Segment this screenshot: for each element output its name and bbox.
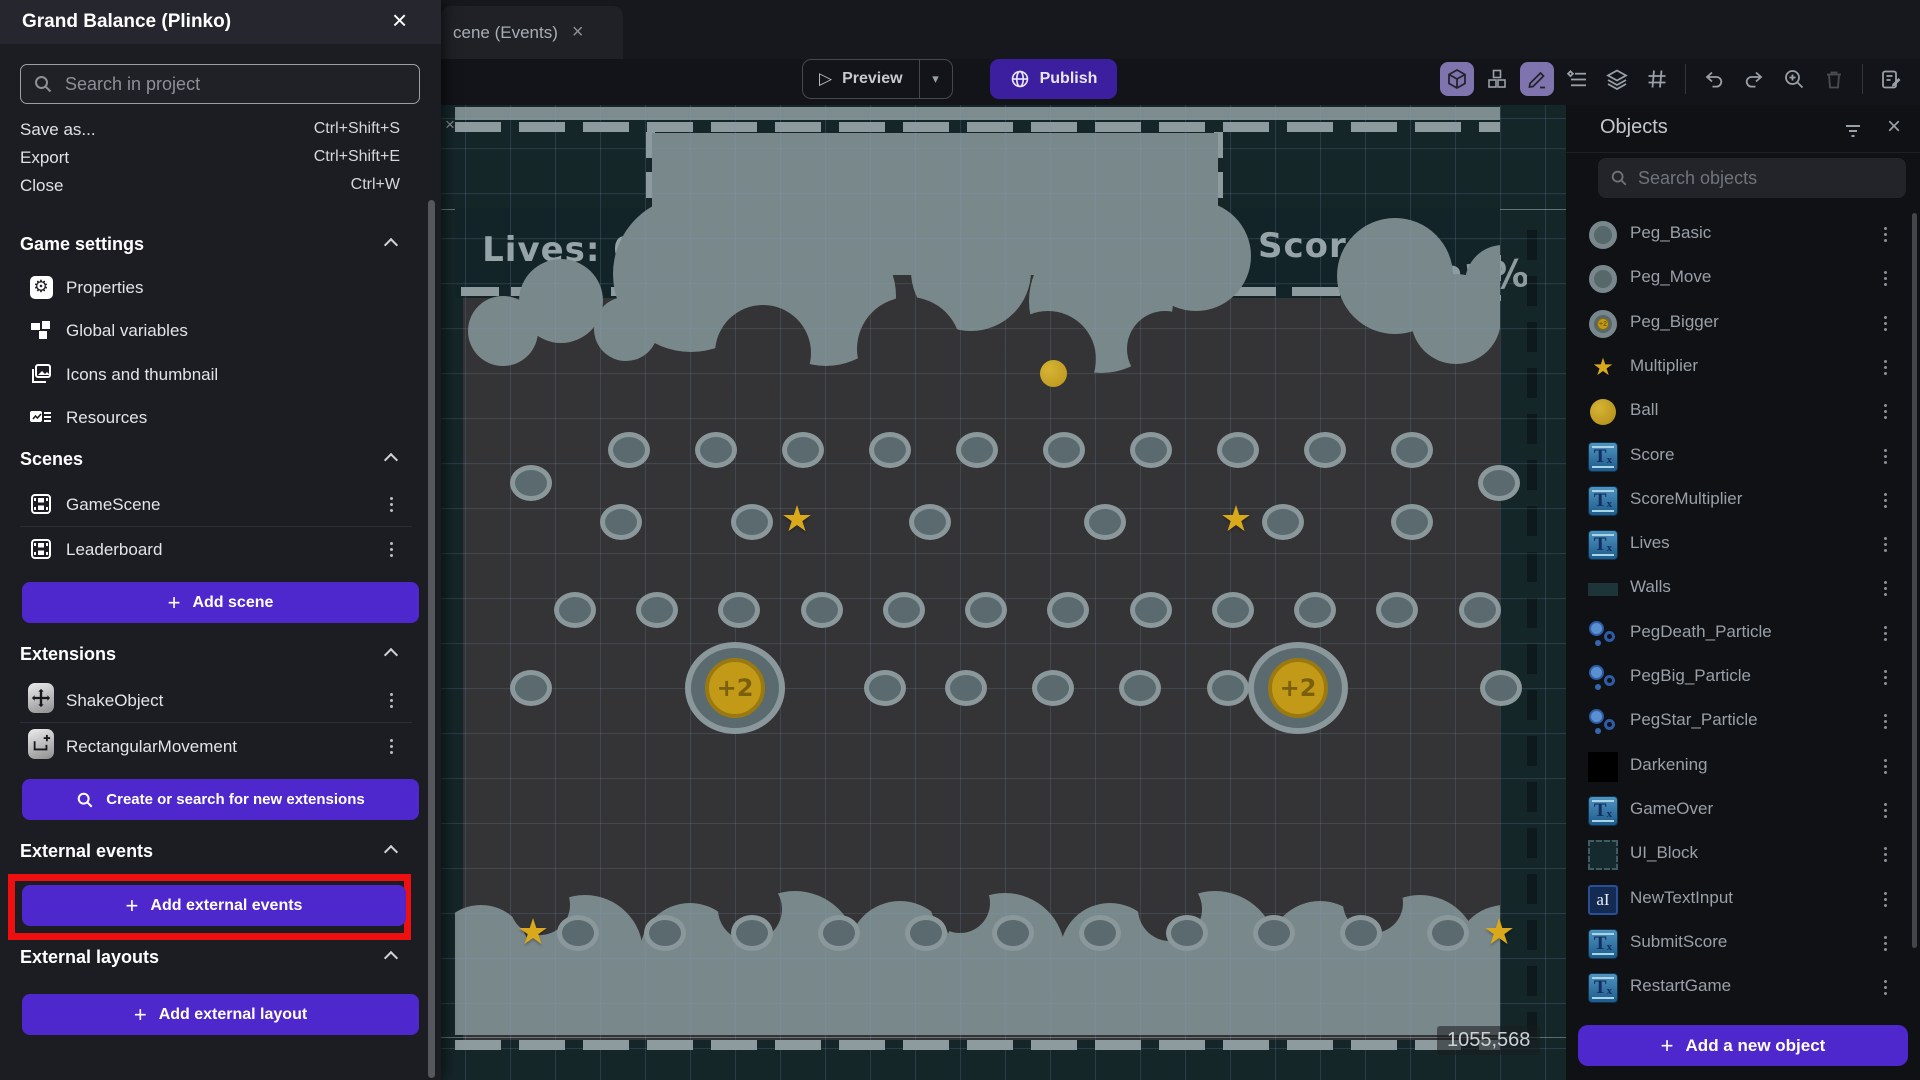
edit-tool-button[interactable] <box>1520 62 1554 96</box>
filter-icon[interactable] <box>1843 119 1863 144</box>
section-game-settings[interactable]: Game settings <box>20 234 144 255</box>
toolbar-divider <box>1685 64 1686 94</box>
add-external-events-button[interactable]: + Add external events <box>22 885 406 926</box>
coin-label: +2 <box>705 658 765 718</box>
peg-instance[interactable] <box>1217 432 1259 468</box>
multiplier-star-instance[interactable]: ★ <box>1216 499 1256 541</box>
peg-object-icon <box>1588 264 1618 294</box>
uiblock-object-icon <box>1588 840 1618 870</box>
section-scenes[interactable]: Scenes <box>20 449 83 470</box>
peg-instance[interactable] <box>945 670 987 706</box>
list-icon <box>1566 68 1588 90</box>
scene-icon <box>28 536 54 562</box>
grid-button[interactable] <box>1640 62 1674 96</box>
undo-button[interactable] <box>1697 62 1731 96</box>
search-icon <box>1610 169 1628 187</box>
project-title: Grand Balance (Plinko) <box>22 11 231 33</box>
project-manager-drawer: Grand Balance (Plinko) × Save as... Ctrl… <box>0 0 441 1080</box>
ball-object-icon <box>1588 397 1618 427</box>
object-row-submitscore[interactable]: TxSubmitScore <box>1566 922 1906 966</box>
sidebar-scrollbar[interactable] <box>428 200 435 1078</box>
publish-button[interactable]: Publish <box>990 59 1117 99</box>
object-name: Darkening <box>1630 755 1708 775</box>
kebab-menu-icon[interactable] <box>1884 980 1887 983</box>
object-name: Walls <box>1630 577 1671 597</box>
kebab-menu-icon[interactable] <box>390 542 393 545</box>
kebab-menu-icon[interactable] <box>1884 449 1887 452</box>
redo-button[interactable] <box>1737 62 1771 96</box>
peg-instance[interactable] <box>557 915 599 951</box>
events-sheet-icon <box>1880 68 1902 90</box>
object-row-walls[interactable]: Walls <box>1566 567 1906 611</box>
peg-instance[interactable] <box>992 915 1034 951</box>
text-object-icon: Tx <box>1588 486 1618 516</box>
gdevelop-editor: cene (Events) × ▷ Preview ▾ Publish <box>0 0 1920 1080</box>
object-name: PegStar_Particle <box>1630 710 1758 730</box>
sidebar-item-shakeobject[interactable]: ShakeObject <box>66 691 163 711</box>
peg-instance[interactable] <box>818 915 860 951</box>
trash-icon <box>1823 68 1845 90</box>
peg-instance[interactable] <box>1166 915 1208 951</box>
object-row-pegdeath_particle[interactable]: PegDeath_Particle <box>1566 612 1906 656</box>
walls-object-icon <box>1588 574 1618 604</box>
object-name: Peg_Basic <box>1630 223 1711 243</box>
bottom-wall-dashes <box>455 1040 1500 1050</box>
peg-instance[interactable] <box>636 592 678 628</box>
divider <box>20 526 412 527</box>
kebab-menu-icon[interactable] <box>1884 714 1887 717</box>
chevron-up-icon[interactable] <box>384 238 398 252</box>
search-icon <box>76 791 94 809</box>
multiplier-star-instance[interactable]: ★ <box>513 912 553 954</box>
peg-instance[interactable] <box>554 592 596 628</box>
peg-instance[interactable] <box>1391 504 1433 540</box>
object-row-ui_block[interactable]: UI_Block <box>1566 833 1906 877</box>
object-row-pegbig_particle[interactable]: PegBig_Particle <box>1566 656 1906 700</box>
objects-panel-close-icon[interactable]: × <box>1887 113 1901 141</box>
text-object-icon: Tx <box>1588 929 1618 959</box>
peg-instance[interactable] <box>1262 504 1304 540</box>
textinput-object-icon: aI <box>1588 885 1618 915</box>
create-search-extensions-button[interactable]: Create or search for new extensions <box>22 779 419 820</box>
peg-instance[interactable] <box>1119 670 1161 706</box>
ball-instance[interactable] <box>1040 360 1067 387</box>
menu-item-export[interactable]: Export Ctrl+Shift+E <box>0 148 420 174</box>
peg-instance[interactable] <box>801 592 843 628</box>
peg-instance[interactable] <box>1253 915 1295 951</box>
instances-tool-button[interactable] <box>1480 62 1514 96</box>
peg-instance[interactable] <box>600 504 642 540</box>
peg-instance[interactable] <box>695 432 737 468</box>
add-scene-button[interactable]: + Add scene <box>22 582 419 623</box>
chevron-up-icon[interactable] <box>384 951 398 965</box>
peg-instance[interactable] <box>608 432 650 468</box>
text-object-icon: Tx <box>1588 530 1618 560</box>
peg-instance[interactable] <box>731 915 773 951</box>
peg-instance[interactable] <box>1340 915 1382 951</box>
object-row-score[interactable]: TxScore <box>1566 435 1906 479</box>
object-row-ball[interactable]: Ball <box>1566 390 1906 434</box>
object-row-peg_bigger[interactable]: +2Peg_Bigger <box>1566 302 1906 346</box>
object-row-gameover[interactable]: TxGameOver <box>1566 789 1906 833</box>
divider <box>20 722 412 723</box>
toolbar-divider <box>1862 64 1863 94</box>
particle-object-icon <box>1588 619 1618 649</box>
shake-object-icon <box>28 685 54 711</box>
chevron-up-icon[interactable] <box>384 453 398 467</box>
sidebar-item-global-variables[interactable]: Global variables <box>66 321 188 341</box>
peg-instance[interactable] <box>1391 432 1433 468</box>
object-row-newtextinput[interactable]: aINewTextInput <box>1566 878 1906 922</box>
zoom-in-button[interactable] <box>1777 62 1811 96</box>
peg-bigger-instance[interactable]: +2 <box>685 642 785 734</box>
preview-dropdown-button[interactable]: ▾ <box>920 60 952 98</box>
tab-scene-events[interactable]: cene (Events) × <box>441 6 623 59</box>
layers-icon <box>1606 68 1628 90</box>
object-name: GameOver <box>1630 799 1713 819</box>
add-external-layout-button[interactable]: + Add external layout <box>22 994 419 1035</box>
shortcut: Ctrl+Shift+S <box>314 120 400 138</box>
objects-search-input[interactable] <box>1638 168 1878 189</box>
sidebar-item-gamescene[interactable]: GameScene <box>66 495 161 515</box>
object-row-restartgame[interactable]: TxRestartGame <box>1566 966 1906 1010</box>
resources-icon <box>28 404 54 430</box>
shortcut: Ctrl+Shift+E <box>314 148 400 166</box>
object-name: Score <box>1630 445 1674 465</box>
object-name: Ball <box>1630 400 1658 420</box>
coin-label: +2 <box>1268 658 1328 718</box>
kebab-menu-icon[interactable] <box>1884 316 1887 319</box>
grid-icon <box>1646 68 1668 90</box>
pencil-icon <box>1526 68 1548 90</box>
objects-panel-title: Objects <box>1600 116 1668 139</box>
sidebar-item-resources[interactable]: Resources <box>66 408 147 428</box>
peg-instance[interactable] <box>956 432 998 468</box>
peg-instance[interactable] <box>909 504 951 540</box>
object-name: PegBig_Particle <box>1630 666 1751 686</box>
peg-instance[interactable] <box>1427 915 1469 951</box>
peg-instance[interactable] <box>1043 432 1085 468</box>
object-row-pegstar_particle[interactable]: PegStar_Particle <box>1566 700 1906 744</box>
objects-search-box[interactable] <box>1598 158 1906 198</box>
peg-instance[interactable] <box>883 592 925 628</box>
object-name: NewTextInput <box>1630 888 1733 908</box>
object-name: Peg_Move <box>1630 267 1711 287</box>
sidebar-item-properties[interactable]: Properties <box>66 278 143 298</box>
peg-instance[interactable] <box>731 504 773 540</box>
kebab-menu-icon[interactable] <box>1884 626 1887 629</box>
shortcut: Ctrl+W <box>351 176 400 194</box>
kebab-menu-icon[interactable] <box>1884 404 1887 407</box>
kebab-menu-icon[interactable] <box>1884 537 1887 540</box>
peg-instance[interactable] <box>864 670 906 706</box>
sidebar-item-rectangularmovement[interactable]: RectangularMovement <box>66 737 237 757</box>
zoom-in-icon <box>1783 68 1805 90</box>
3d-view-toggle[interactable] <box>1440 62 1474 96</box>
layers-button[interactable] <box>1600 62 1634 96</box>
multiplier-star-instance[interactable]: ★ <box>777 499 817 541</box>
objects-panel-header: Objects × <box>1566 105 1920 153</box>
peg-instance[interactable] <box>1294 592 1336 628</box>
tab-label: cene (Events) <box>453 23 558 43</box>
kebab-menu-icon[interactable] <box>1884 581 1887 584</box>
text-object-icon: Tx <box>1588 973 1618 1003</box>
black-object-icon <box>1588 752 1618 782</box>
peg-instance[interactable] <box>905 915 947 951</box>
kebab-menu-icon[interactable] <box>1884 759 1887 762</box>
global-variables-icon <box>28 317 54 343</box>
object-name: Lives <box>1630 533 1670 553</box>
object-name: Multiplier <box>1630 356 1698 376</box>
peg-big-object-icon: +2 <box>1588 309 1618 339</box>
peg-instance[interactable] <box>1376 592 1418 628</box>
peg-instance[interactable] <box>1084 504 1126 540</box>
scene-canvas[interactable]: Lives: 0 Score: 0 +25% <box>441 105 1566 1080</box>
menu-item-save-as[interactable]: Save as... Ctrl+Shift+S <box>0 120 420 146</box>
object-row-multiplier[interactable]: ★Multiplier <box>1566 346 1906 390</box>
object-name: Peg_Bigger <box>1630 312 1719 332</box>
section-extensions[interactable]: Extensions <box>20 644 116 665</box>
project-manager-close-icon[interactable]: × <box>392 5 407 36</box>
object-name: RestartGame <box>1630 976 1731 996</box>
kebab-menu-icon[interactable] <box>1884 670 1887 673</box>
play-icon: ▷ <box>819 69 832 89</box>
section-external-events[interactable]: External events <box>20 841 153 862</box>
properties-icon: ⚙ <box>28 274 54 300</box>
objects-panel-scrollbar[interactable] <box>1912 213 1917 948</box>
peg-instance[interactable] <box>1459 592 1501 628</box>
object-row-peg_move[interactable]: Peg_Move <box>1566 257 1906 301</box>
peg-object-icon <box>1588 220 1618 250</box>
peg-instance[interactable] <box>1212 592 1254 628</box>
tab-close-icon[interactable]: × <box>572 21 584 44</box>
peg-instance[interactable] <box>1304 432 1346 468</box>
kebab-menu-icon[interactable] <box>390 497 393 500</box>
icons-thumbnail-icon <box>28 361 54 387</box>
bottom-wall-line <box>441 1037 1566 1038</box>
globe-icon <box>1010 69 1030 89</box>
particle-object-icon <box>1588 663 1618 693</box>
cursor-coordinates-badge: 1055,568 <box>1437 1026 1540 1055</box>
peg-instance[interactable] <box>1130 432 1172 468</box>
project-manager-header: Grand Balance (Plinko) × <box>0 0 441 44</box>
open-events-sheet-button[interactable] <box>1874 62 1908 96</box>
peg-instance[interactable] <box>644 915 686 951</box>
menu-item-close[interactable]: Close Ctrl+W <box>0 176 420 202</box>
undo-icon <box>1703 68 1725 90</box>
rectangular-movement-icon <box>28 731 54 757</box>
kebab-menu-icon[interactable] <box>1884 892 1887 895</box>
kebab-menu-icon[interactable] <box>1884 847 1887 850</box>
cube-icon <box>1446 68 1468 90</box>
editor-tool-icons <box>1440 62 1908 96</box>
kebab-menu-icon[interactable] <box>390 693 393 696</box>
object-row-scoremultiplier[interactable]: TxScoreMultiplier <box>1566 479 1906 523</box>
sidebar-item-icons-thumbnail[interactable]: Icons and thumbnail <box>66 365 218 385</box>
peg-instance[interactable] <box>718 592 760 628</box>
peg-instance[interactable] <box>1130 592 1172 628</box>
kebab-menu-icon[interactable] <box>1884 936 1887 939</box>
project-search-box[interactable] <box>20 64 420 104</box>
sidebar-item-leaderboard[interactable]: Leaderboard <box>66 540 162 560</box>
object-name: UI_Block <box>1630 843 1698 863</box>
preview-button[interactable]: ▷ Preview ▾ <box>802 59 953 99</box>
search-icon <box>33 74 53 94</box>
peg-instance[interactable] <box>1207 670 1249 706</box>
peg-instance[interactable] <box>510 670 552 706</box>
peg-instance[interactable] <box>1480 670 1522 706</box>
publish-label: Publish <box>1040 70 1098 88</box>
text-object-icon: Tx <box>1588 442 1618 472</box>
plus-icon: + <box>1661 1036 1674 1056</box>
kebab-menu-icon[interactable] <box>1884 803 1887 806</box>
add-new-object-button[interactable]: + Add a new object <box>1578 1025 1908 1066</box>
particle-object-icon <box>1588 707 1618 737</box>
delete-button[interactable] <box>1817 62 1851 96</box>
blocks-icon <box>1486 68 1508 90</box>
peg-instance[interactable] <box>782 432 824 468</box>
peg-instance[interactable] <box>510 465 552 501</box>
project-search-input[interactable] <box>65 74 395 95</box>
peg-instance[interactable] <box>1032 670 1074 706</box>
object-name: SubmitScore <box>1630 932 1727 952</box>
plus-icon: + <box>126 896 139 916</box>
scene-icon <box>28 491 54 517</box>
redo-icon <box>1743 68 1765 90</box>
peg-instance[interactable] <box>1079 915 1121 951</box>
peg-instance[interactable] <box>869 432 911 468</box>
scene-objects-layer: ★★★★+2+2 <box>441 105 1566 1080</box>
peg-instance[interactable] <box>1047 592 1089 628</box>
multiplier-star-instance[interactable]: ★ <box>1479 912 1519 954</box>
kebab-menu-icon[interactable] <box>1884 271 1887 274</box>
chevron-up-icon[interactable] <box>384 648 398 662</box>
chevron-up-icon[interactable] <box>384 845 398 859</box>
objects-panel: Objects × Peg_BasicPeg_Move+2Peg_Bigger★… <box>1566 105 1920 1080</box>
object-row-lives[interactable]: TxLives <box>1566 523 1906 567</box>
star-object-icon: ★ <box>1588 353 1618 383</box>
object-row-darkening[interactable]: Darkening <box>1566 745 1906 789</box>
panel-close-icon[interactable]: × <box>445 115 455 135</box>
peg-instance[interactable] <box>1478 465 1520 501</box>
peg-bigger-instance[interactable]: +2 <box>1248 642 1348 734</box>
plus-icon: + <box>134 1005 147 1025</box>
section-external-layouts[interactable]: External layouts <box>20 947 159 968</box>
text-object-icon: Tx <box>1588 796 1618 826</box>
object-name: PegDeath_Particle <box>1630 622 1772 642</box>
plus-icon: + <box>168 593 181 613</box>
kebab-menu-icon[interactable] <box>1884 227 1887 230</box>
object-name: ScoreMultiplier <box>1630 489 1742 509</box>
object-row-peg_basic[interactable]: Peg_Basic <box>1566 213 1906 257</box>
kebab-menu-icon[interactable] <box>390 739 393 742</box>
kebab-menu-icon[interactable] <box>1884 493 1887 496</box>
preview-label: Preview <box>842 70 902 88</box>
instances-list-button[interactable] <box>1560 62 1594 96</box>
kebab-menu-icon[interactable] <box>1884 360 1887 363</box>
peg-instance[interactable] <box>965 592 1007 628</box>
